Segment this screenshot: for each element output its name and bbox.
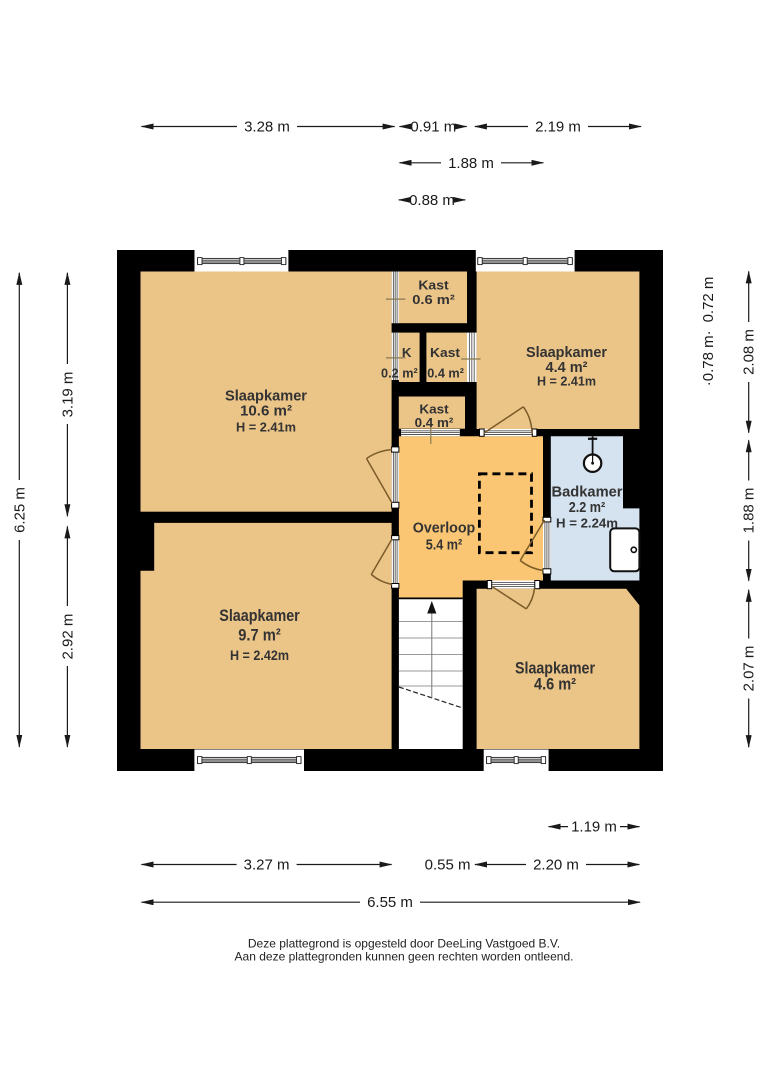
svg-text:10.6 m²: 10.6 m² — [240, 403, 292, 420]
svg-text:2.2 m²: 2.2 m² — [569, 500, 606, 516]
svg-text:0.88 m: 0.88 m — [409, 192, 455, 209]
svg-text:3.28 m: 3.28 m — [244, 119, 290, 136]
svg-text:Badkamer: Badkamer — [552, 485, 623, 501]
svg-text:·0.78 m·: ·0.78 m· — [700, 330, 717, 386]
svg-text:H = 2.41m: H = 2.41m — [236, 420, 296, 435]
svg-text:2.92 m: 2.92 m — [59, 614, 76, 660]
svg-text:K: K — [402, 345, 412, 360]
svg-text:Kast: Kast — [418, 277, 449, 292]
svg-text:0.2 m²: 0.2 m² — [381, 366, 418, 381]
svg-text:Aan deze plattegronden kunnen: Aan deze plattegronden kunnen geen recht… — [235, 950, 574, 964]
svg-text:0.91 m: 0.91 m — [410, 119, 456, 136]
svg-text:Slaapkamer: Slaapkamer — [219, 606, 300, 625]
svg-text:2.20 m: 2.20 m — [533, 857, 579, 874]
svg-text:1.19 m: 1.19 m — [571, 819, 617, 836]
svg-text:6.55 m: 6.55 m — [367, 894, 413, 911]
svg-text:Overloop: Overloop — [413, 519, 476, 536]
svg-text:H = 2.42m: H = 2.42m — [230, 648, 289, 663]
svg-text:2.19 m: 2.19 m — [535, 119, 581, 136]
svg-text:4.6 m²: 4.6 m² — [534, 676, 576, 694]
svg-text:H = 2.41m: H = 2.41m — [537, 374, 596, 389]
svg-text:1.88 m: 1.88 m — [741, 488, 758, 534]
svg-text:0.6 m²: 0.6 m² — [412, 292, 455, 307]
svg-text:Deze plattegrond is opgesteld: Deze plattegrond is opgesteld door DeeLi… — [248, 937, 560, 951]
svg-text:0.4 m²: 0.4 m² — [427, 366, 464, 381]
svg-text:H = 2.24m: H = 2.24m — [556, 516, 618, 531]
svg-text:0.55 m: 0.55 m — [425, 857, 471, 874]
svg-text:9.7 m²: 9.7 m² — [238, 626, 281, 645]
svg-text:5.4 m²: 5.4 m² — [426, 536, 463, 553]
svg-text:0.4 m²: 0.4 m² — [415, 415, 454, 430]
svg-text:1.88 m: 1.88 m — [448, 155, 494, 172]
svg-text:2.08 m: 2.08 m — [741, 329, 758, 375]
svg-text:3.19 m: 3.19 m — [59, 372, 76, 418]
svg-text:2.07 m: 2.07 m — [741, 646, 758, 692]
svg-text:6.25 m: 6.25 m — [11, 487, 28, 533]
svg-text:Kast: Kast — [430, 345, 461, 360]
svg-text:0.72 m: 0.72 m — [700, 277, 717, 323]
svg-text:3.27 m: 3.27 m — [244, 857, 290, 874]
